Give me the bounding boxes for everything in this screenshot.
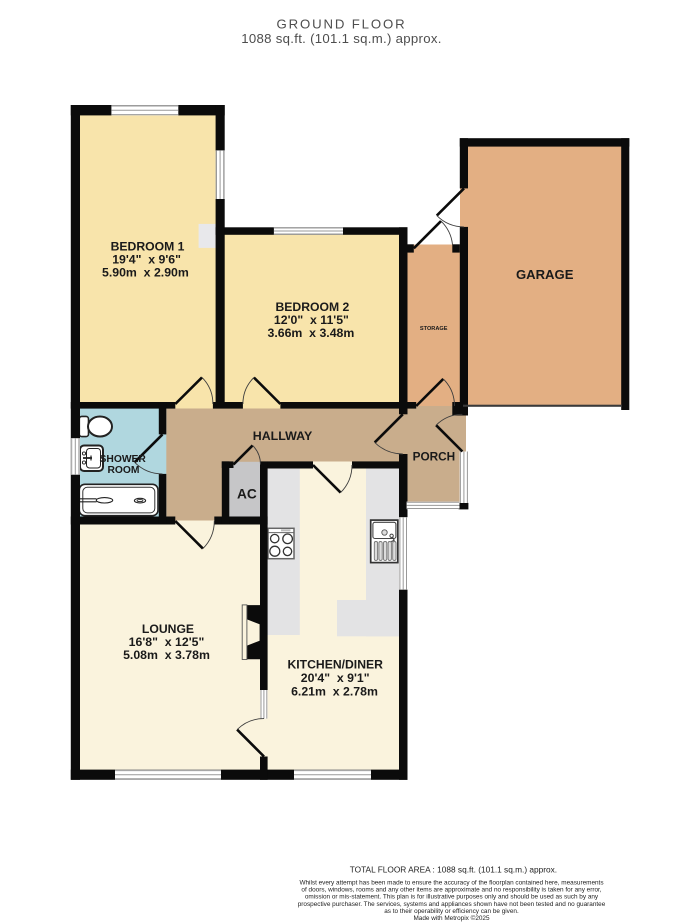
svg-text:6.21m x 2.78m: 6.21m x 2.78m	[291, 685, 378, 699]
svg-text:16'8" x 12'5": 16'8" x 12'5"	[129, 635, 205, 649]
svg-text:omission or mis-statement. Thi: omission or mis-statement. This plan is …	[305, 894, 599, 901]
svg-text:5.90m x 2.90m: 5.90m x 2.90m	[102, 265, 189, 279]
svg-text:GROUND FLOOR: GROUND FLOOR	[277, 17, 407, 32]
svg-text:STORAGE: STORAGE	[420, 326, 448, 332]
svg-text:AC: AC	[237, 486, 257, 501]
svg-text:20'4" x 9'1": 20'4" x 9'1"	[301, 671, 370, 685]
svg-text:PORCH: PORCH	[413, 450, 456, 464]
svg-text:TOTAL FLOOR AREA : 1088 sq.ft.: TOTAL FLOOR AREA : 1088 sq.ft. (101.1 sq…	[350, 865, 557, 875]
svg-text:ROOM: ROOM	[107, 465, 139, 476]
svg-text:KITCHEN/DINER: KITCHEN/DINER	[287, 658, 383, 672]
svg-text:5.08m x 3.78m: 5.08m x 3.78m	[123, 648, 210, 662]
svg-text:prospective purchaser. The ser: prospective purchaser. The services, sys…	[298, 901, 606, 908]
svg-text:12'0" x 11'5": 12'0" x 11'5"	[274, 313, 349, 327]
svg-text:SHOWER: SHOWER	[100, 454, 147, 465]
svg-text:LOUNGE: LOUNGE	[142, 622, 194, 636]
svg-text:of doors, windows, rooms and a: of doors, windows, rooms and any other i…	[301, 887, 601, 894]
svg-text:1088 sq.ft. (101.1 sq.m.) appr: 1088 sq.ft. (101.1 sq.m.) approx.	[241, 31, 442, 46]
svg-text:as to their operability or eff: as to their operability or efficiency ca…	[384, 908, 519, 915]
svg-text:GARAGE: GARAGE	[516, 267, 574, 282]
svg-text:Made with Metropix ©2025: Made with Metropix ©2025	[413, 914, 490, 922]
svg-text:BEDROOM 1: BEDROOM 1	[111, 240, 185, 254]
svg-text:3.66m x 3.48m: 3.66m x 3.48m	[267, 326, 354, 340]
svg-text:BEDROOM 2: BEDROOM 2	[275, 300, 349, 314]
svg-text:Whilst every attempt has been: Whilst every attempt has been made to en…	[299, 880, 603, 887]
svg-text:HALLWAY: HALLWAY	[253, 429, 313, 443]
